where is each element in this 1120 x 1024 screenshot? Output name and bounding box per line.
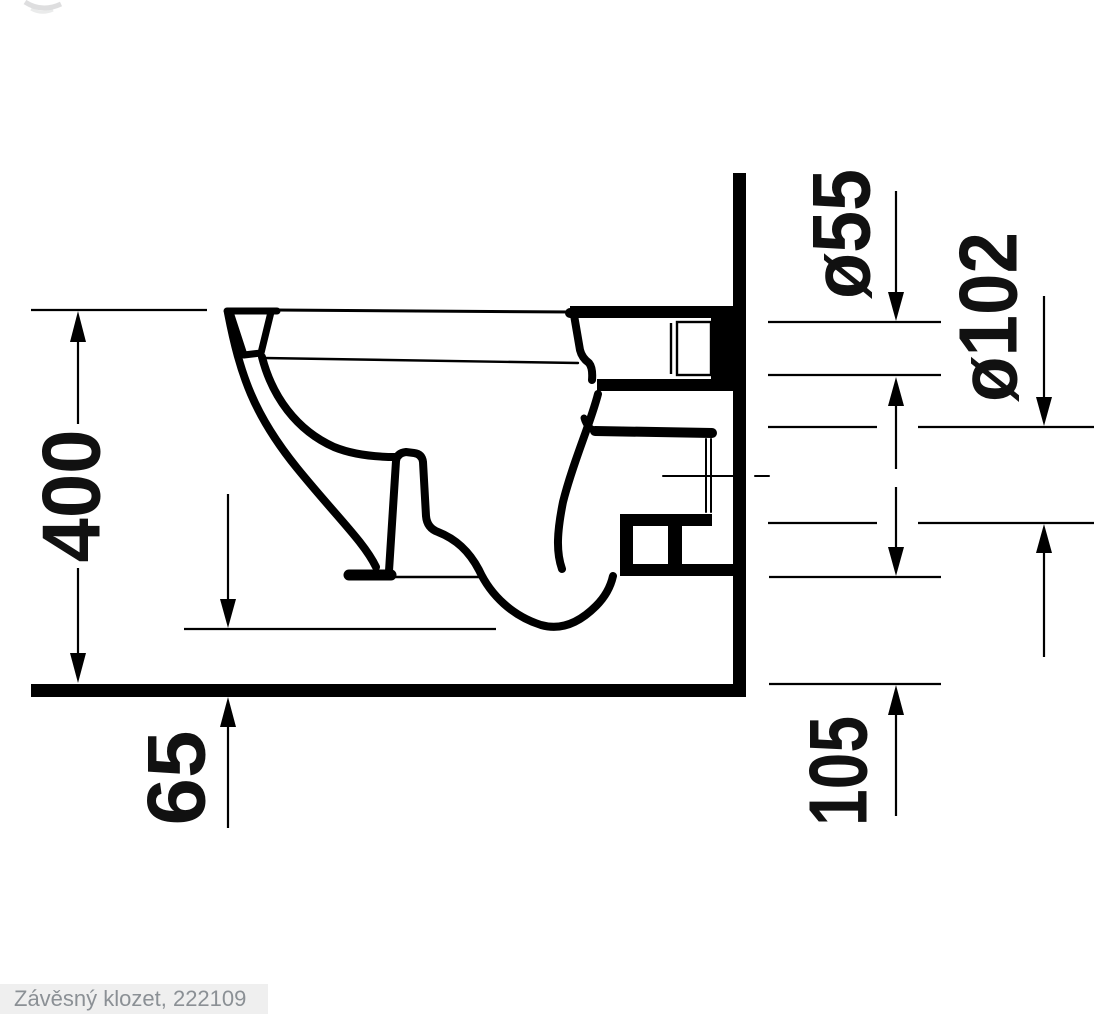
dim-55-arrow-up (888, 377, 904, 406)
dim-label-dia102: ø102 (942, 232, 1035, 402)
dim-overall-height: 400 (25, 310, 208, 683)
dim-label-400: 400 (25, 430, 118, 563)
rim-top-line (275, 310, 573, 312)
dim-label-105: 105 (792, 716, 885, 826)
flush-pipe-socket (677, 322, 711, 375)
dim-flush-diameter: ø55 (768, 169, 941, 469)
bracket-top-bar (620, 514, 712, 526)
seat-surface-line (264, 358, 578, 363)
dim-outlet-height: 105 (769, 487, 941, 826)
product-caption: Závěsný klozet, 222109 (0, 984, 268, 1014)
dim-65-arrow-up (220, 697, 236, 727)
dim-102-arrow-up (1036, 524, 1052, 553)
logo-remnant (25, 2, 61, 12)
dim-bowl-clearance: 65 (130, 494, 497, 828)
drain-top-bar (595, 431, 712, 433)
toilet-profile (227, 310, 733, 627)
dim-400-arrow-down (70, 653, 86, 683)
logo-remnant-arc (25, 2, 61, 8)
bowl-inner-back-wall (558, 394, 598, 569)
flush-inlet-bottom-bar (597, 379, 734, 391)
technical-drawing-page: 400 65 ø55 (0, 0, 1120, 1024)
bracket-bottom-bar (620, 564, 734, 576)
dim-400-arrow-up (70, 311, 86, 342)
flush-inlet-top-bar (570, 306, 734, 318)
dim-105-arrow-down (888, 547, 904, 576)
wall-section-line (733, 173, 746, 697)
trap-weir-and-bowl-bottom-curve (389, 452, 613, 627)
flush-inlet-wall-block (711, 312, 734, 382)
dim-55-arrow-down (888, 292, 904, 321)
dim-label-dia55: ø55 (795, 169, 888, 299)
dim-label-65: 65 (130, 731, 223, 826)
floor-line (31, 684, 746, 697)
mounting-bracket (620, 514, 734, 576)
dim-105-arrow-up (888, 685, 904, 715)
dim-65-arrow-down (220, 599, 236, 628)
dim-102-arrow-down (1036, 397, 1052, 426)
back-rim-slant-edge (574, 315, 592, 380)
wall-hung-toilet-side-section-drawing: 400 65 ø55 (0, 0, 1120, 1024)
